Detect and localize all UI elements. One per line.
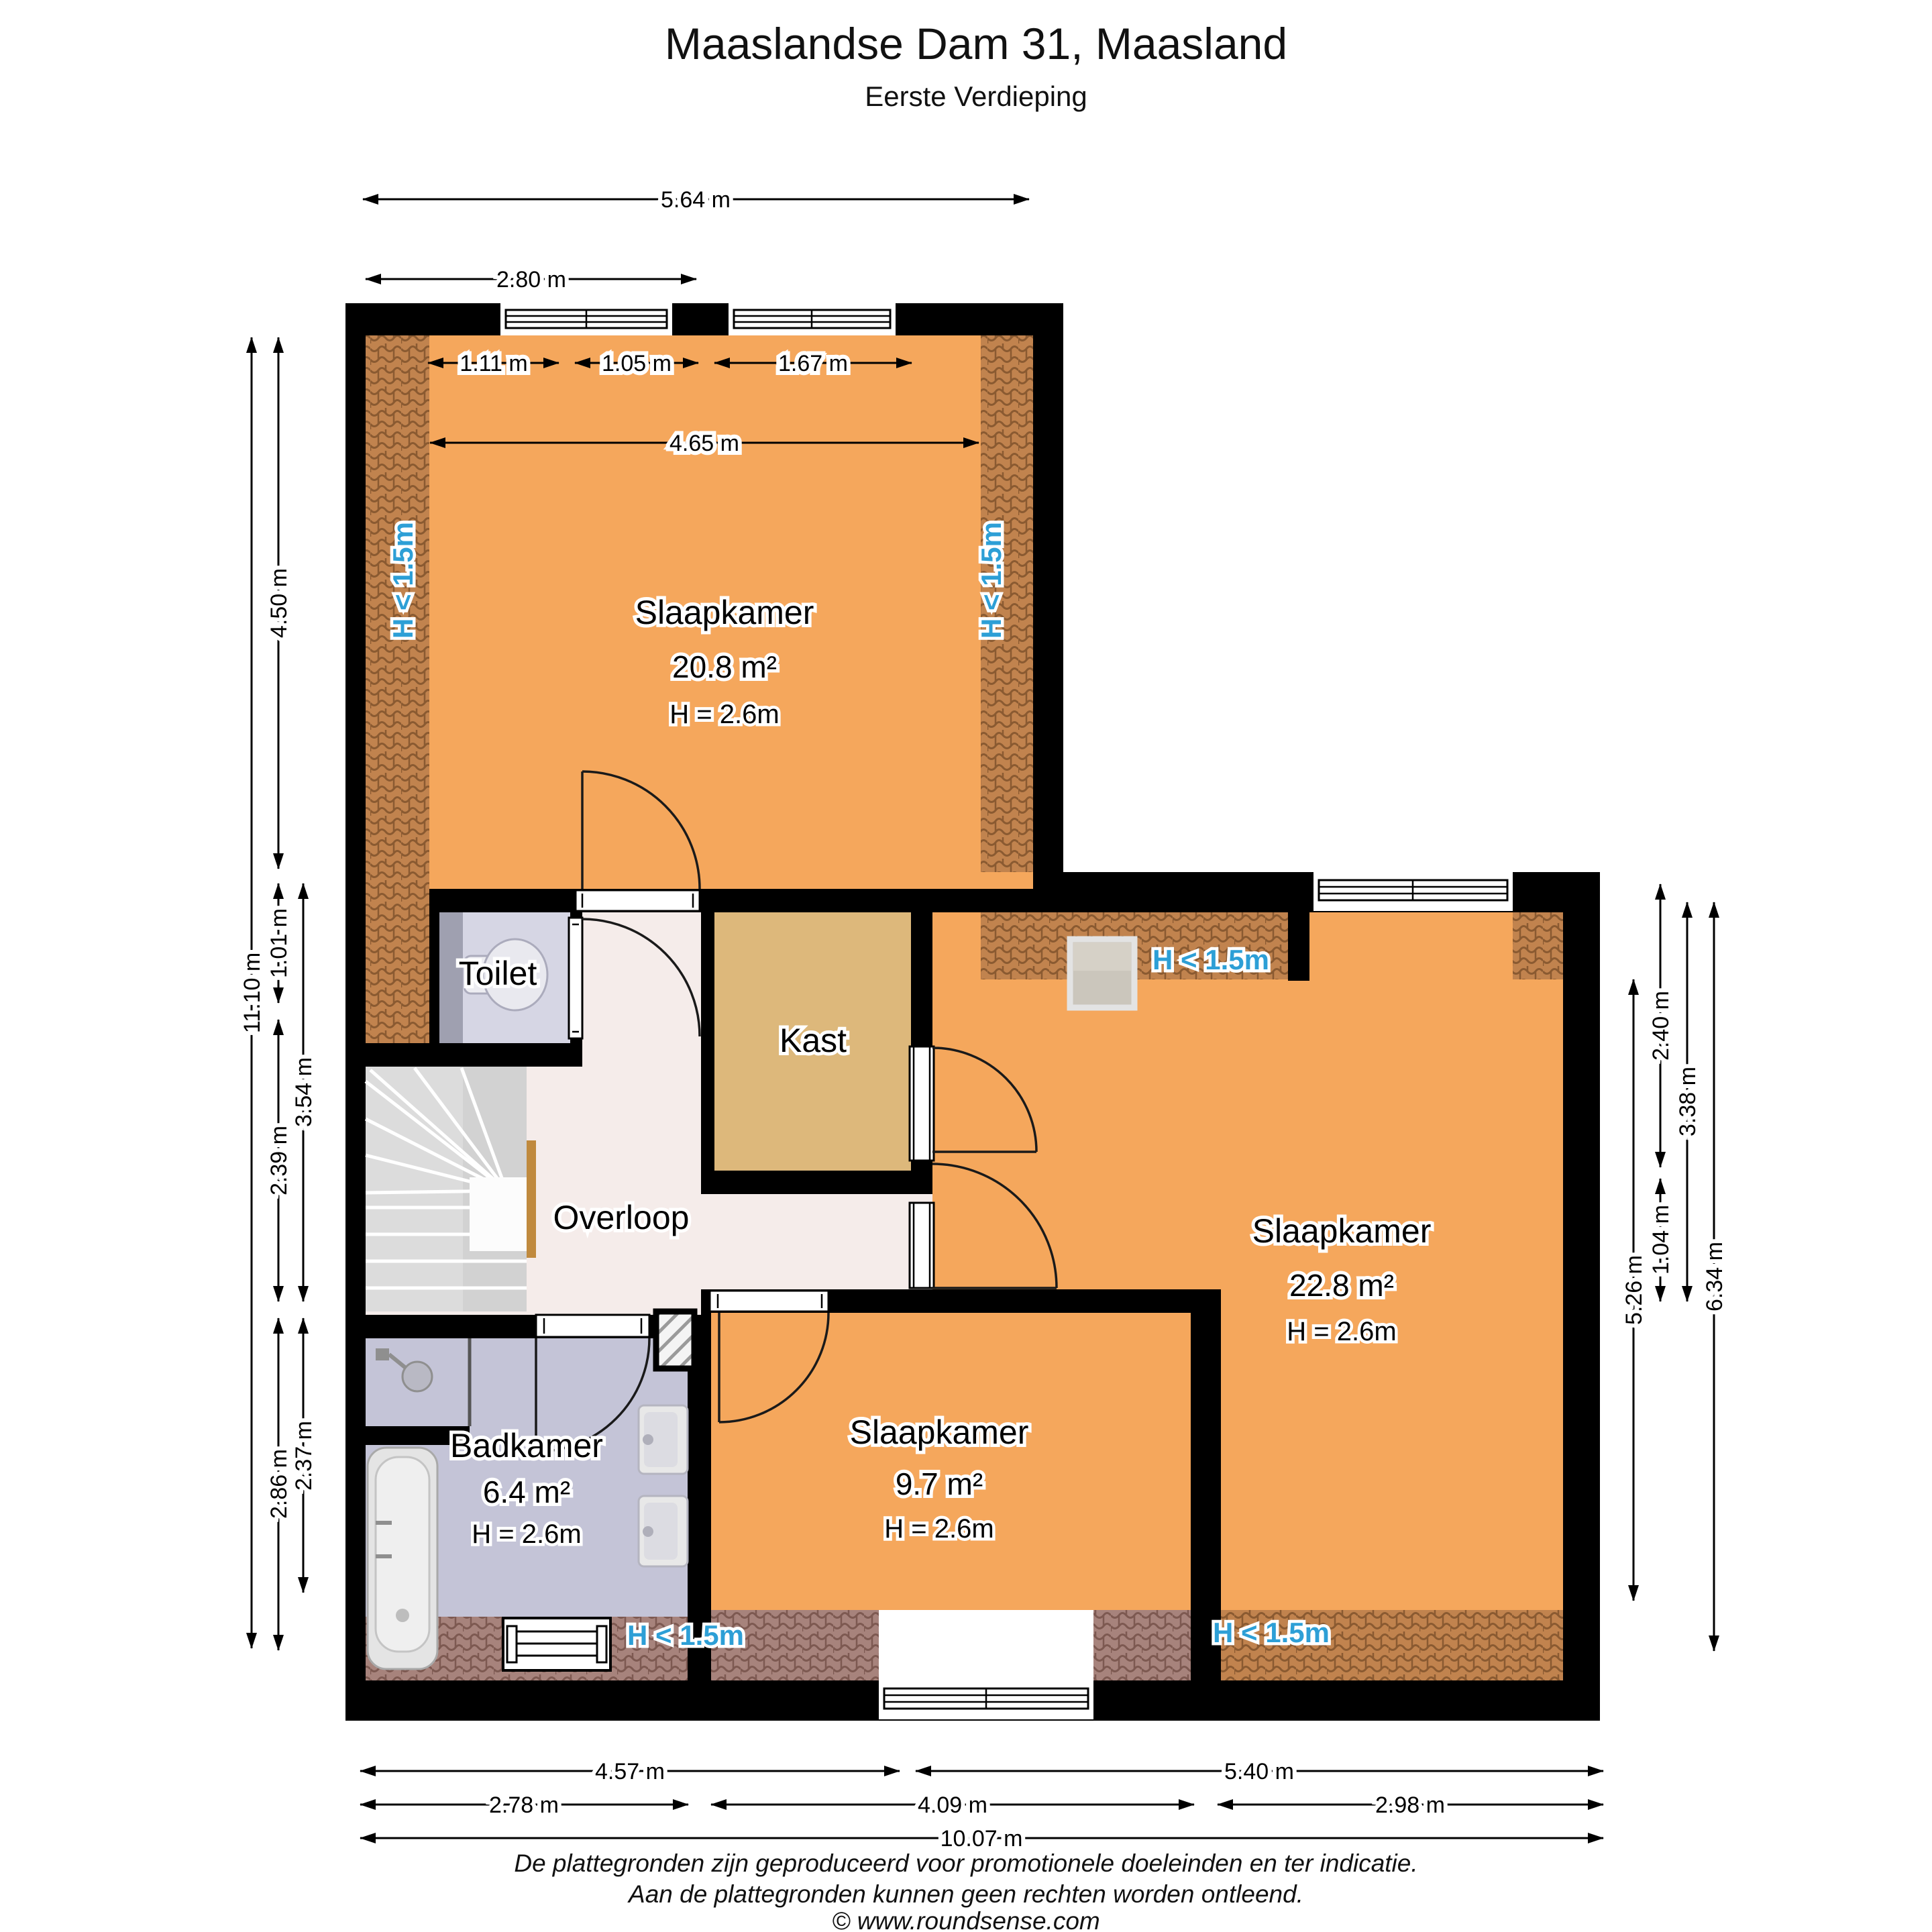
- room-slaapkamer-9-7-floor: [711, 1313, 1191, 1610]
- dimension-label: 2.78 m: [489, 1792, 559, 1818]
- duct-shaft: [656, 1311, 694, 1368]
- label-badkamer-name: Badkamer: [450, 1427, 603, 1464]
- label-low-clearance-right: H < 1.5m: [975, 522, 1007, 639]
- label-slaapkamer-22-8-name: Slaapkamer: [1252, 1212, 1432, 1250]
- dimension-label: 4.09 m: [918, 1792, 987, 1818]
- dimension-label: 3.38 m: [1675, 1067, 1701, 1136]
- label-kast: Kast: [780, 1022, 847, 1059]
- window-top-left: [500, 303, 672, 335]
- dimension-label: 5.26 m: [1621, 1255, 1647, 1325]
- footer-copyright: © www.roundsense.com: [832, 1907, 1099, 1932]
- dimension-label: 1.05 m: [602, 351, 672, 376]
- roof-band-left: [366, 335, 429, 1043]
- page-subtitle: Eerste Verdieping: [865, 80, 1087, 112]
- roof-band-bottom-9-7-right: [1093, 1610, 1191, 1680]
- label-slaapkamer-20-8-area: 20.8 m²: [672, 649, 777, 684]
- window-bottom: [879, 1610, 1093, 1719]
- skylight: [1070, 939, 1134, 1008]
- page-title: Maaslandse Dam 31, Maasland: [665, 19, 1287, 68]
- dimension-label: 2.39 m: [266, 1126, 292, 1195]
- label-slaapkamer-20-8-name: Slaapkamer: [635, 594, 814, 631]
- label-badkamer-area: 6.4 m²: [483, 1474, 570, 1509]
- window-top-right: [729, 303, 896, 335]
- label-toilet: Toilet: [459, 955, 537, 992]
- footer-disclaimer-1: De plattegronden zijn geproduceerd voor …: [514, 1849, 1417, 1877]
- label-badkamer-height: H = 2.6m: [472, 1519, 581, 1549]
- label-slaapkamer-20-8-height: H = 2.6m: [669, 700, 779, 729]
- dimension-label: 2.40 m: [1648, 991, 1674, 1061]
- dimension-label: 2.37 m: [291, 1421, 317, 1491]
- dimension-label: 4.65 m: [669, 431, 739, 456]
- label-slaapkamer-9-7-height: H = 2.6m: [884, 1514, 994, 1544]
- label-low-clearance-bottom-left: H < 1.5m: [627, 1619, 744, 1651]
- dimension-label: 2.80 m: [496, 267, 566, 292]
- dimension-label: 1.11 m: [460, 351, 527, 376]
- label-low-clearance-left: H < 1.5m: [387, 522, 419, 639]
- dimensions-bottom: 4.57 m 5.40 m 2.78 m 4.09 m 2.98 m 10.07…: [360, 1759, 1603, 1851]
- dimension-label: 1.01 m: [266, 908, 292, 978]
- dimension-label: 2.98 m: [1375, 1792, 1445, 1818]
- label-slaapkamer-22-8-height: H = 2.6m: [1287, 1317, 1396, 1346]
- dimension-label: 3.54 m: [291, 1057, 317, 1127]
- label-slaapkamer-9-7-name: Slaapkamer: [850, 1413, 1029, 1451]
- dimension-label: 10.07 m: [941, 1826, 1023, 1851]
- dimension-label: 4.50 m: [266, 568, 292, 638]
- room-overloop-floor-east: [701, 1194, 932, 1289]
- stairs-landing: [470, 1177, 527, 1251]
- floorplan-canvas: Maaslandse Dam 31, Maasland Eerste Verdi…: [0, 0, 1932, 1932]
- room-overloop-floor: [582, 912, 701, 1315]
- dimension-label: 2.86 m: [266, 1449, 292, 1519]
- label-slaapkamer-22-8-area: 22.8 m²: [1289, 1268, 1394, 1303]
- label-low-clearance-bottom-right: H < 1.5m: [1213, 1617, 1330, 1648]
- dimension-label: 4.57 m: [595, 1759, 665, 1784]
- label-slaapkamer-9-7-area: 9.7 m²: [896, 1466, 983, 1501]
- window-22-8-top: [1313, 872, 1513, 911]
- label-low-clearance-top-22-8: H < 1.5m: [1152, 944, 1269, 975]
- dimension-label: 5.40 m: [1224, 1759, 1294, 1784]
- radiator: [503, 1618, 610, 1670]
- dimensions-right: 5.26 m 2.40 m 1.04 m 3.38 m 6.34 m: [1621, 884, 1727, 1651]
- dimension-label: 5.64 m: [661, 187, 731, 213]
- roof-band-top-right-22-8: [1513, 912, 1563, 979]
- footer-disclaimer-2: Aan de plattegronden kunnen geen rechten…: [627, 1880, 1303, 1908]
- label-overloop: Overloop: [553, 1199, 690, 1236]
- dimensions-left: 11.10 m 4.50 m 1.01 m 3.54 m 2.39 m 2.86…: [239, 337, 317, 1650]
- stairs: [366, 1067, 536, 1311]
- floorplan-page: Maaslandse Dam 31, Maasland Eerste Verdi…: [0, 0, 1932, 1932]
- dimension-label: 6.34 m: [1702, 1242, 1727, 1311]
- dimension-label: 1.67 m: [778, 351, 848, 376]
- bathtub: [368, 1448, 437, 1669]
- wall-stub-22-8: [1288, 911, 1309, 981]
- dimension-label: 1.04 m: [1648, 1205, 1674, 1275]
- dimension-label: 11.10 m: [239, 953, 265, 1033]
- stairs-handrail: [527, 1140, 536, 1258]
